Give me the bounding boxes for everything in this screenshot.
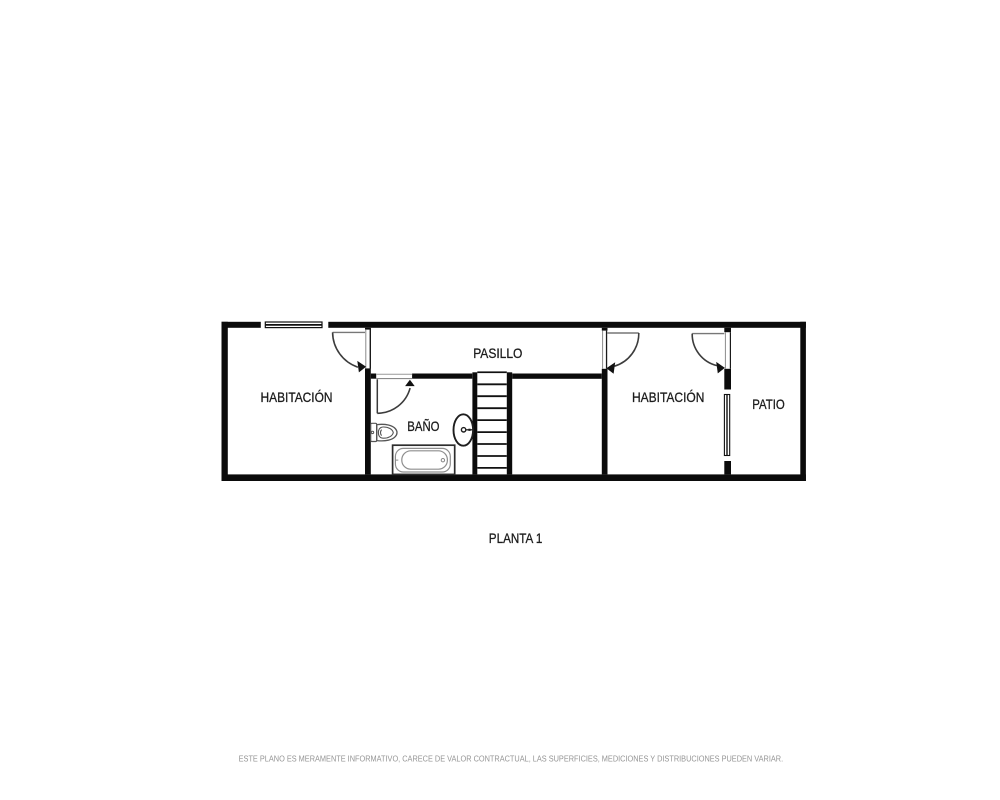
- svg-text:PASILLO: PASILLO: [473, 345, 522, 361]
- svg-text:HABITACIÓN: HABITACIÓN: [632, 389, 705, 405]
- svg-text:ESTE PLANO ES MERAMENTE INFORM: ESTE PLANO ES MERAMENTE INFORMATIVO, CAR…: [239, 754, 784, 763]
- svg-text:PLANTA 1: PLANTA 1: [489, 530, 543, 546]
- svg-text:PATIO: PATIO: [752, 396, 785, 412]
- svg-text:BAÑO: BAÑO: [407, 418, 439, 434]
- svg-text:HABITACIÓN: HABITACIÓN: [261, 389, 333, 405]
